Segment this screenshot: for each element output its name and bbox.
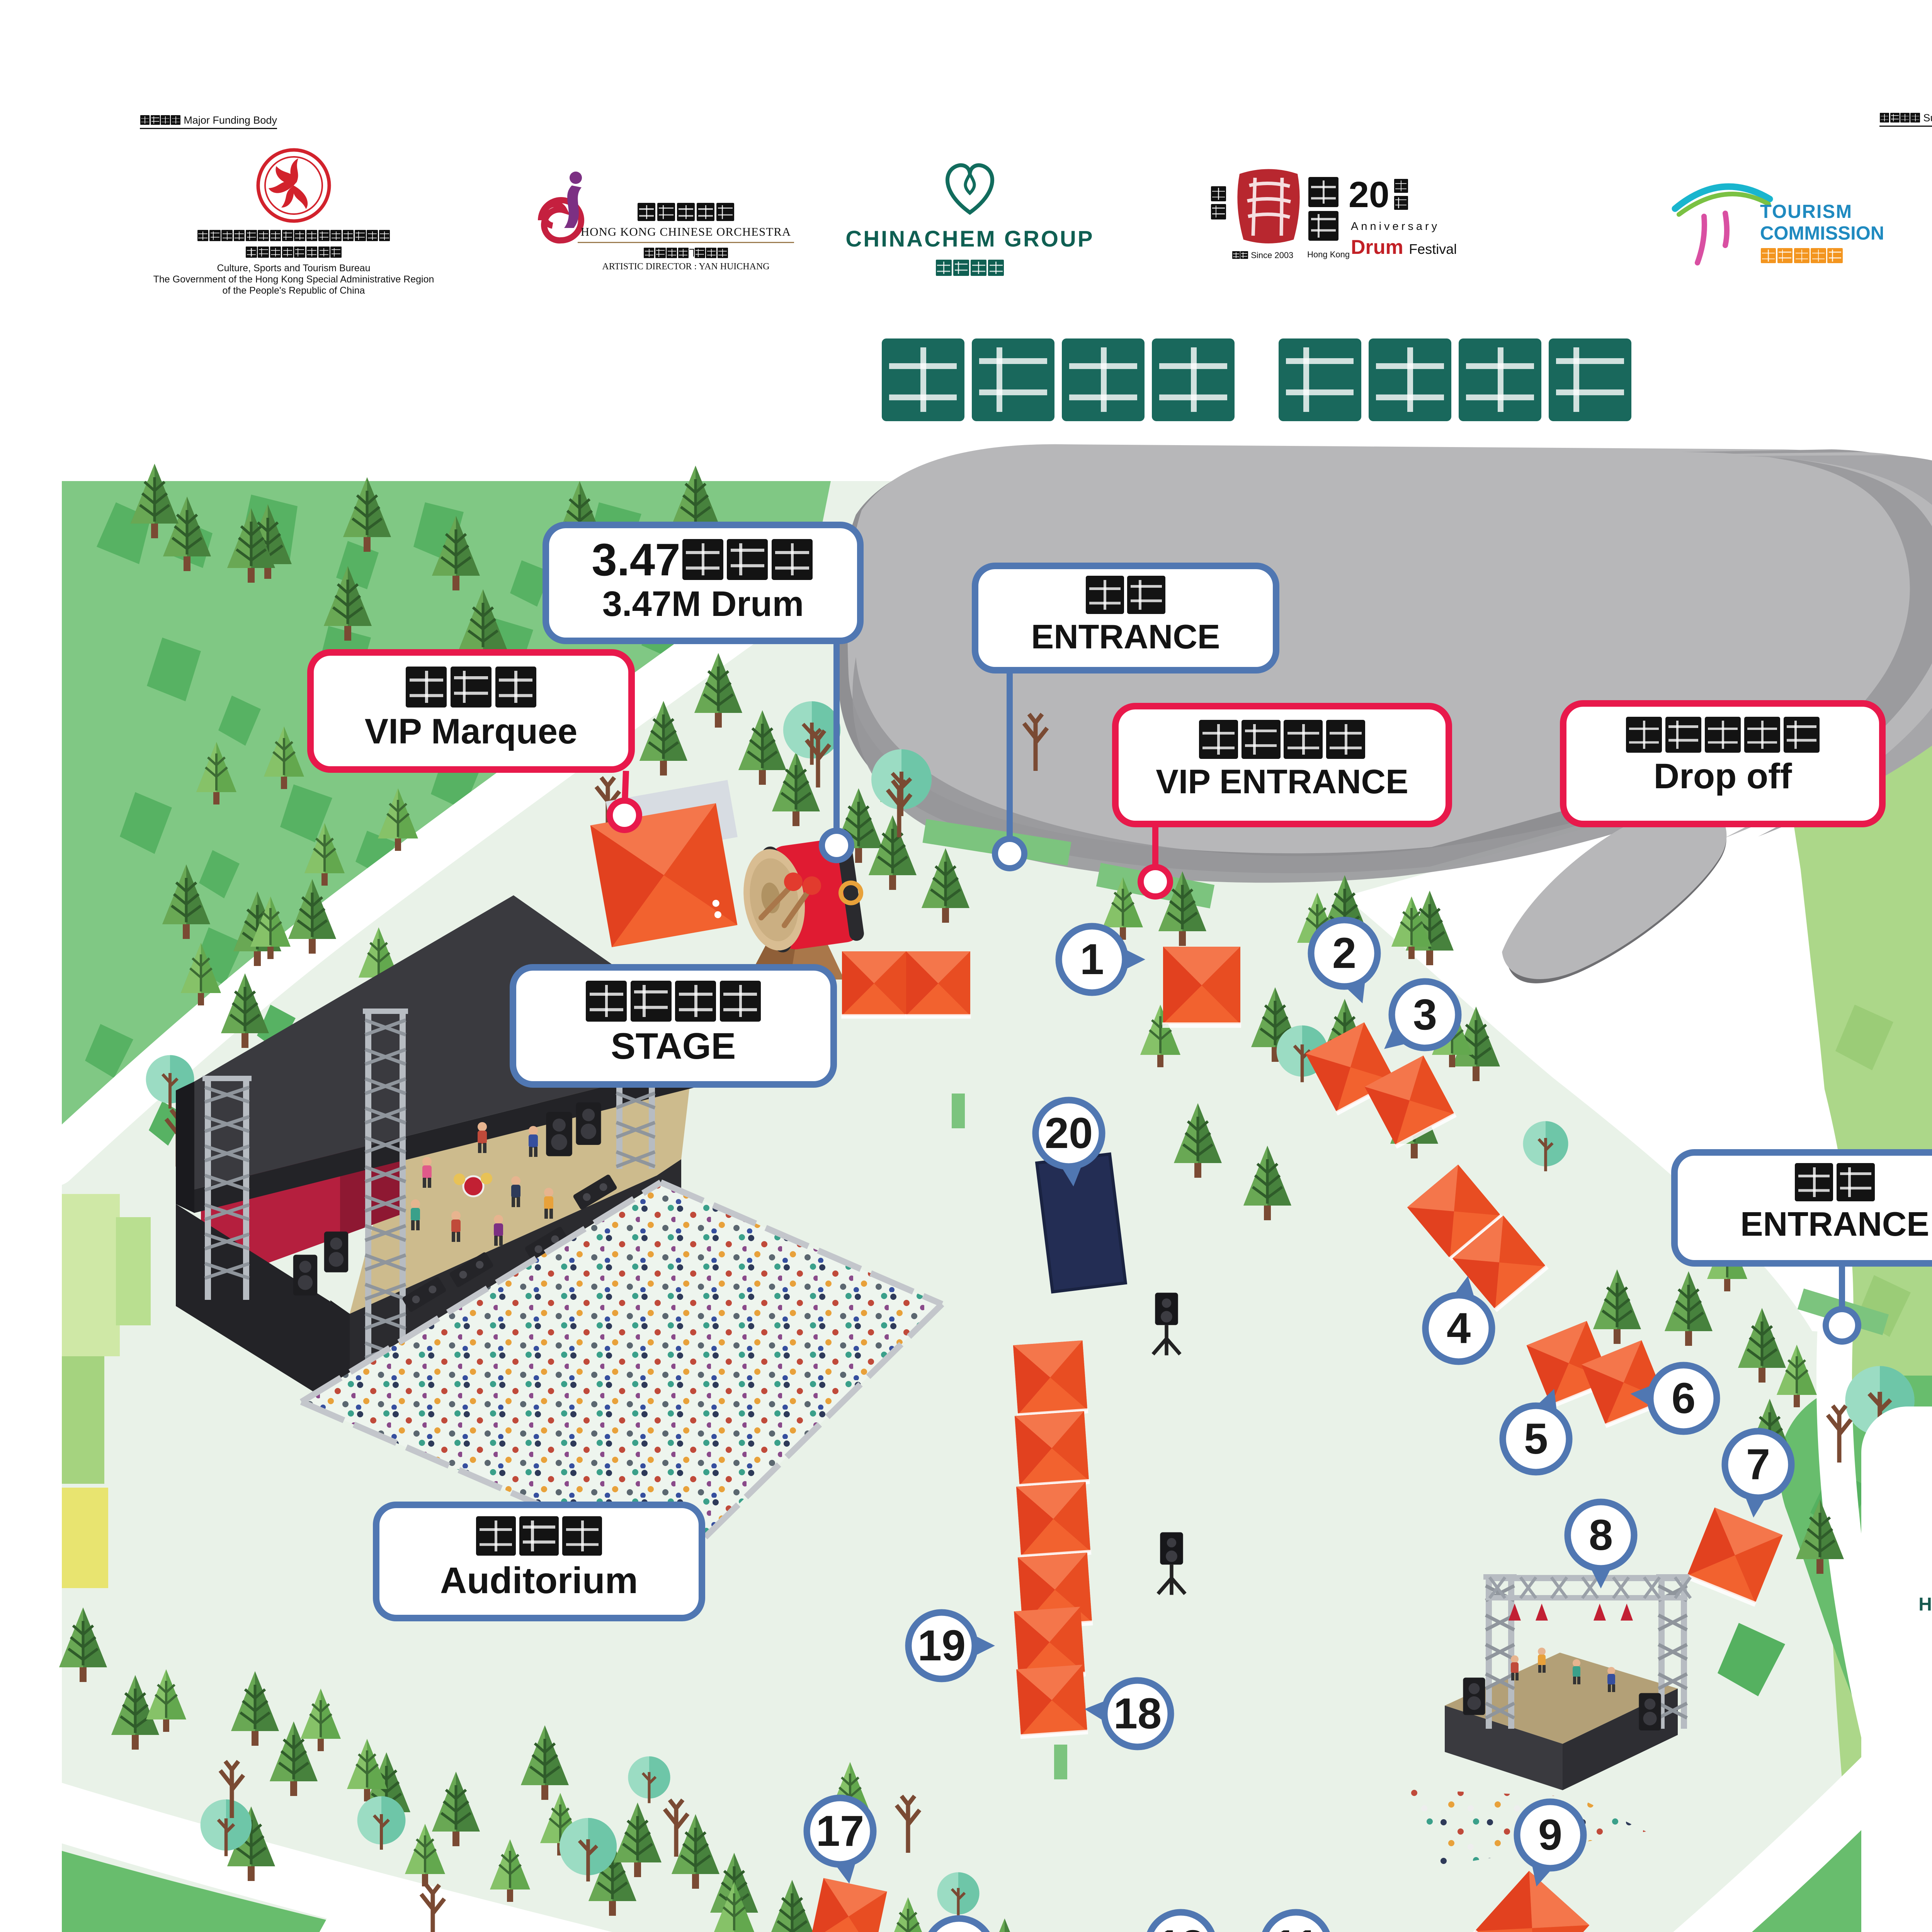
svg-text:13: 13 (1157, 1921, 1205, 1932)
svg-text:5: 5 (1524, 1415, 1548, 1463)
svg-text:6: 6 (1672, 1374, 1696, 1422)
svg-text:17: 17 (816, 1807, 864, 1855)
svg-text:16: 16 (935, 1927, 983, 1932)
svg-text:9: 9 (1538, 1811, 1562, 1859)
svg-text:11: 11 (1273, 1921, 1319, 1932)
svg-text:19: 19 (918, 1621, 966, 1670)
svg-text:2: 2 (1332, 929, 1356, 977)
svg-text:7: 7 (1746, 1440, 1770, 1488)
svg-text:3: 3 (1413, 990, 1437, 1039)
svg-text:1: 1 (1080, 935, 1104, 983)
svg-text:8: 8 (1589, 1511, 1613, 1559)
svg-text:20: 20 (1045, 1109, 1093, 1157)
svg-text:18: 18 (1114, 1689, 1162, 1738)
svg-text:4: 4 (1447, 1304, 1471, 1352)
